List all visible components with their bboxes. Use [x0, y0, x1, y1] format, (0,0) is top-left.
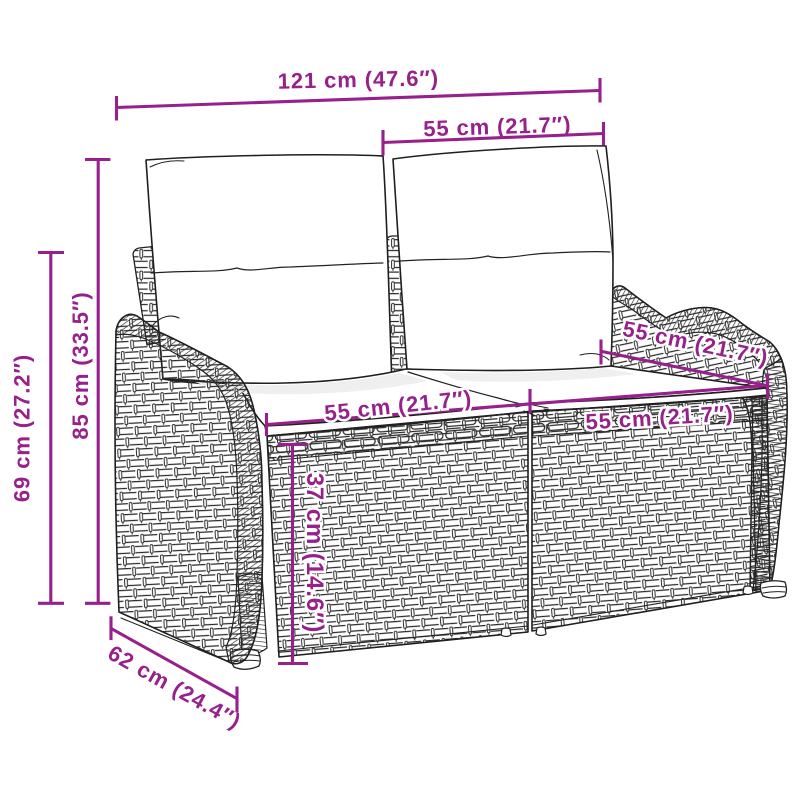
svg-text:85 cm (33.5″): 85 cm (33.5″)	[68, 291, 93, 439]
svg-text:121 cm (47.6″): 121 cm (47.6″)	[277, 65, 439, 93]
svg-text:37 cm (14.6″): 37 cm (14.6″)	[301, 473, 328, 634]
svg-text:55 cm (21.7″): 55 cm (21.7″)	[423, 112, 572, 142]
svg-text:69 cm (27.2″): 69 cm (27.2″)	[10, 354, 35, 502]
